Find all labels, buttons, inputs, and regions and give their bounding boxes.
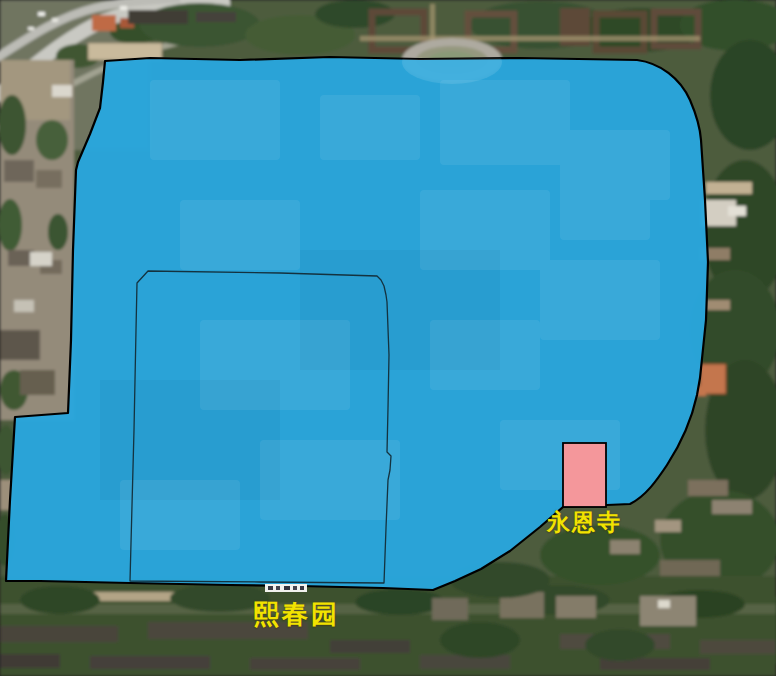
map-image (0, 0, 776, 676)
map-canvas[interactable]: 永恩寺 熙春园 (0, 0, 776, 676)
label-xichun-garden: 熙春园 (253, 601, 340, 627)
label-yongen-temple: 永恩寺 (547, 511, 622, 534)
rooftop-detail (265, 584, 307, 592)
temple-parcel[interactable] (563, 443, 606, 507)
